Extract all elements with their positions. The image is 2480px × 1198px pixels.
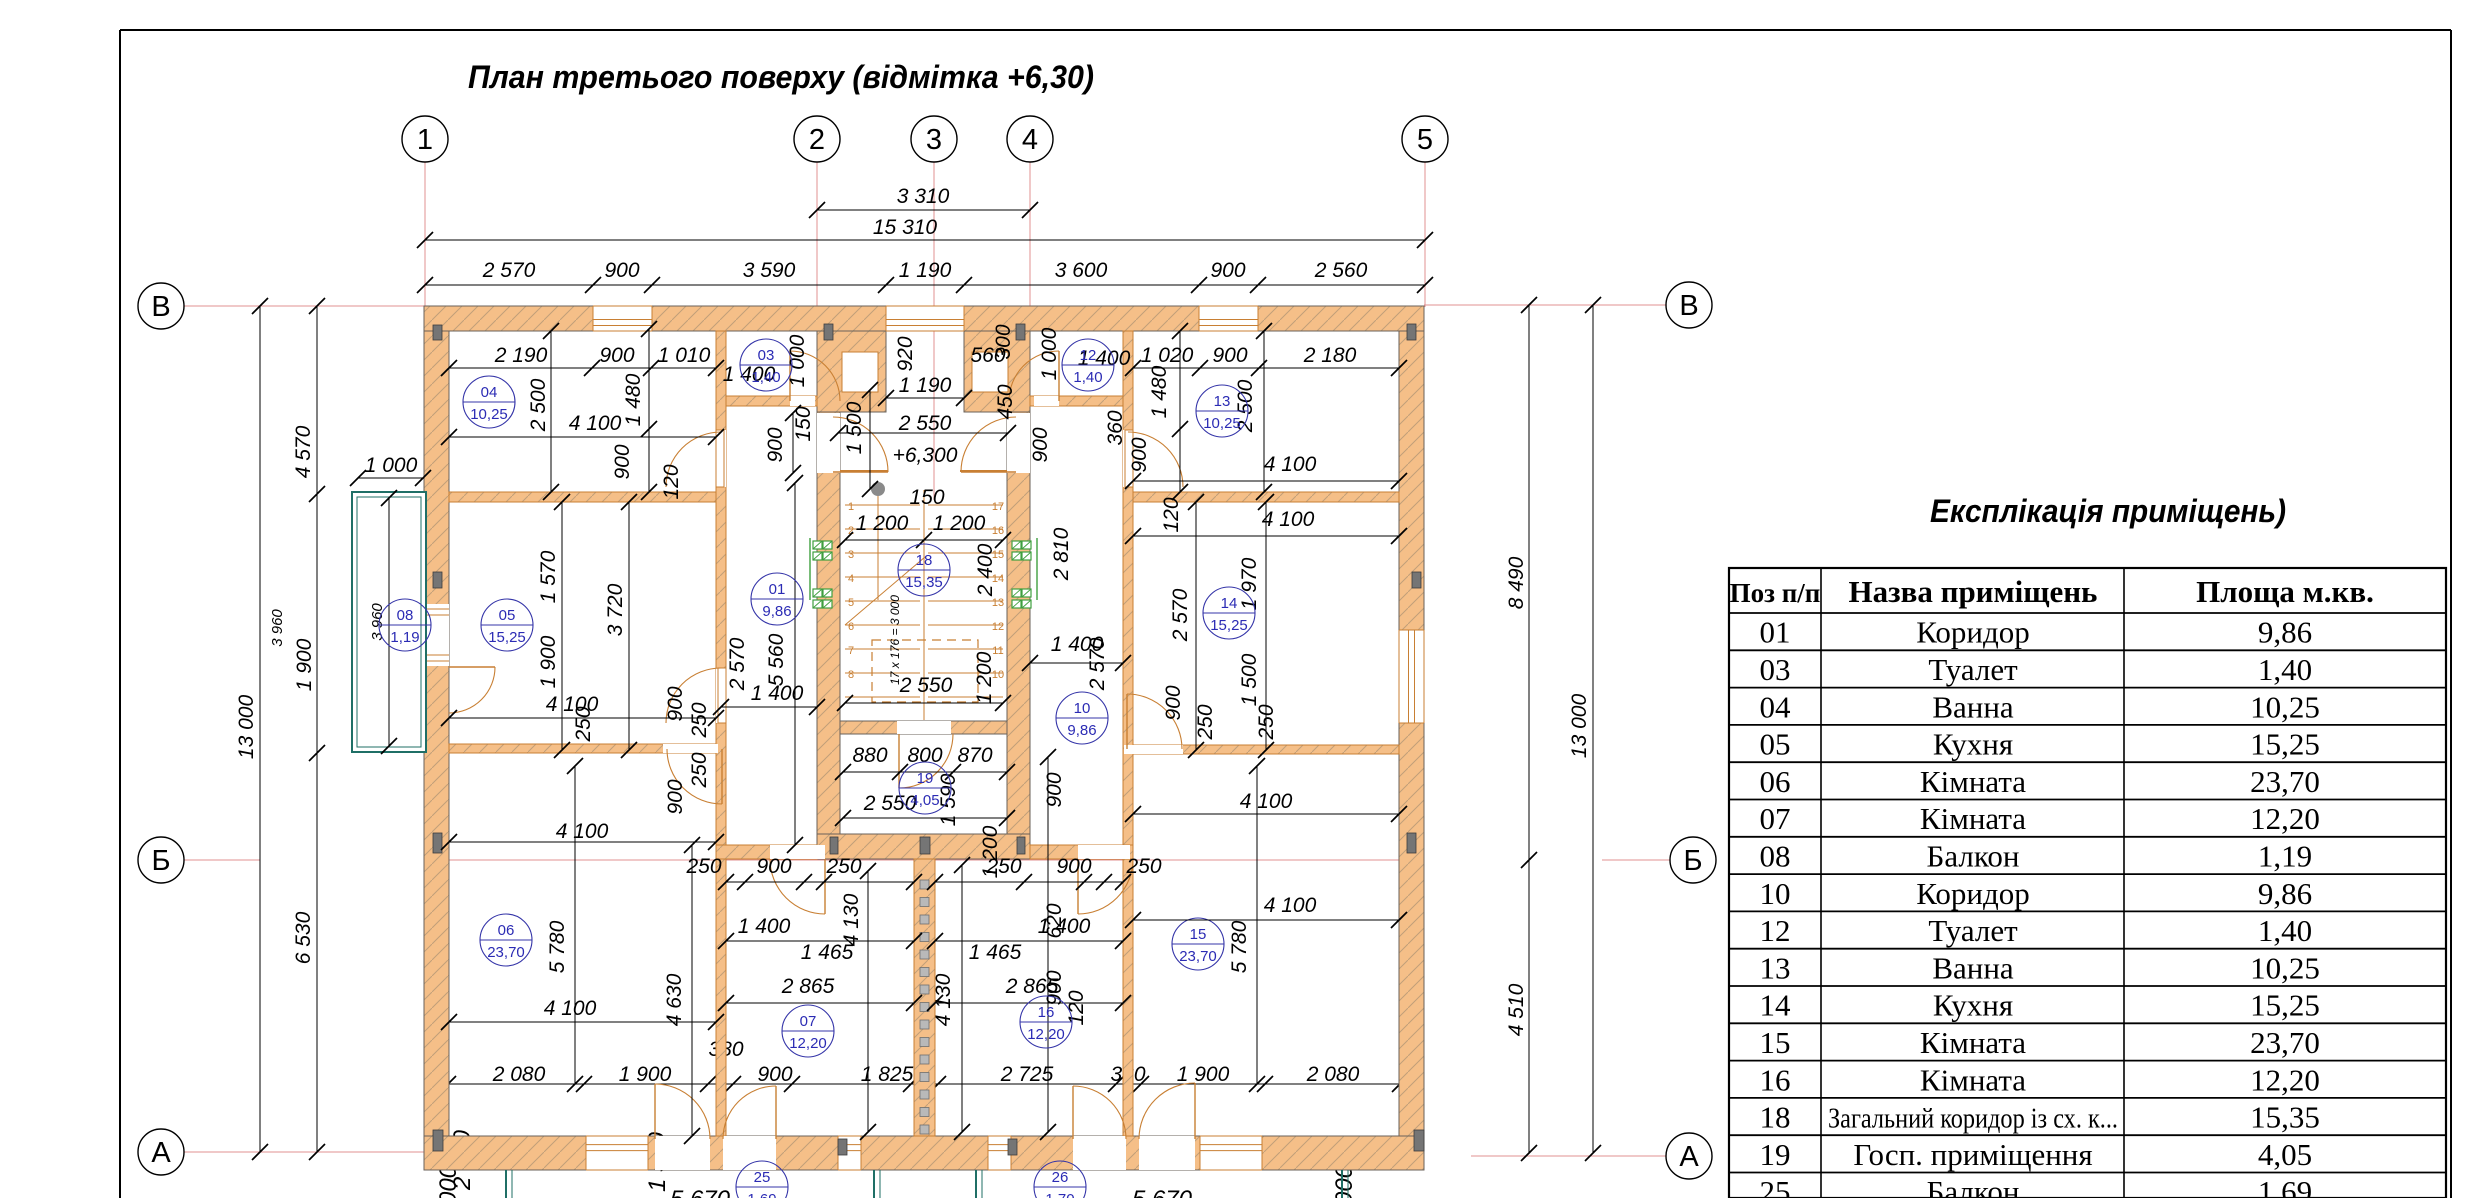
svg-text:3 590: 3 590 (743, 259, 796, 282)
svg-text:5 780: 5 780 (546, 920, 569, 973)
svg-text:1 010: 1 010 (658, 344, 711, 367)
svg-text:1 000: 1 000 (1038, 327, 1061, 380)
svg-text:Кімната: Кімната (1920, 764, 2026, 799)
svg-text:10,25: 10,25 (1203, 415, 1241, 432)
svg-text:5 670: 5 670 (1132, 1186, 1193, 1198)
svg-text:9,86: 9,86 (2258, 876, 2312, 911)
svg-text:250: 250 (1255, 704, 1278, 740)
svg-text:01: 01 (769, 581, 786, 598)
svg-text:5 670: 5 670 (670, 1186, 731, 1198)
svg-text:23,70: 23,70 (2250, 1025, 2320, 1060)
svg-text:Коридор: Коридор (1916, 615, 2030, 650)
svg-text:1 900: 1 900 (619, 1063, 672, 1086)
svg-text:1 480: 1 480 (622, 373, 645, 426)
svg-text:4 100: 4 100 (1264, 453, 1317, 476)
svg-text:25: 25 (1760, 1174, 1791, 1198)
svg-text:23,70: 23,70 (1179, 948, 1217, 965)
svg-text:2 865: 2 865 (1005, 975, 1059, 998)
svg-text:03: 03 (1760, 652, 1791, 687)
svg-text:25: 25 (754, 1169, 771, 1186)
svg-text:14: 14 (1760, 988, 1792, 1023)
svg-text:Кухня: Кухня (1933, 988, 2013, 1023)
svg-text:900: 900 (1212, 344, 1247, 367)
svg-text:12: 12 (1760, 913, 1791, 948)
svg-text:1,69: 1,69 (747, 1191, 776, 1198)
svg-text:300: 300 (992, 324, 1015, 359)
svg-text:4 130: 4 130 (932, 973, 955, 1026)
svg-text:1 900: 1 900 (537, 635, 560, 688)
svg-text:Кімната: Кімната (1920, 801, 2026, 836)
svg-text:2 180: 2 180 (1303, 344, 1357, 367)
svg-text:2 400: 2 400 (974, 543, 997, 597)
svg-text:1 465: 1 465 (801, 941, 854, 964)
svg-text:01: 01 (1760, 615, 1791, 650)
svg-text:4 510: 4 510 (1505, 983, 1528, 1036)
svg-text:2 570: 2 570 (1086, 637, 1109, 691)
svg-text:8 490: 8 490 (1505, 556, 1528, 609)
svg-text:2 550: 2 550 (863, 792, 917, 815)
svg-text:1 400: 1 400 (1038, 915, 1091, 938)
svg-text:04: 04 (1760, 689, 1792, 724)
svg-text:250: 250 (688, 702, 711, 738)
svg-text:В: В (1679, 290, 1698, 322)
svg-text:17: 17 (992, 501, 1004, 513)
svg-text:1 020: 1 020 (1141, 344, 1194, 367)
svg-text:1,40: 1,40 (751, 369, 780, 386)
svg-text:10: 10 (1074, 700, 1091, 717)
svg-text:07: 07 (1760, 801, 1791, 836)
svg-text:26: 26 (1052, 1169, 1069, 1186)
svg-text:900: 900 (664, 686, 687, 721)
svg-text:05: 05 (499, 607, 516, 624)
svg-text:12: 12 (1080, 347, 1097, 364)
svg-text:4 100: 4 100 (1262, 508, 1315, 531)
svg-text:Експлікація приміщень): Експлікація приміщень) (1930, 493, 2286, 529)
svg-text:2 865: 2 865 (781, 975, 835, 998)
svg-text:900: 900 (1128, 437, 1151, 472)
svg-text:Балкон: Балкон (1927, 1174, 2020, 1198)
svg-text:Ванна: Ванна (1932, 689, 2014, 724)
svg-text:4: 4 (1022, 124, 1038, 156)
svg-text:Коридор: Коридор (1916, 876, 2030, 911)
svg-text:16: 16 (1760, 1062, 1791, 1097)
svg-text:5 780: 5 780 (1228, 920, 1251, 973)
svg-text:13: 13 (1760, 950, 1791, 985)
svg-text:13: 13 (1214, 393, 1231, 410)
svg-text:2 570: 2 570 (726, 637, 749, 691)
svg-text:Госп. приміщення: Госп. приміщення (1853, 1137, 2092, 1172)
svg-text:3 960: 3 960 (269, 609, 286, 647)
svg-text:900: 900 (664, 779, 687, 814)
svg-text:5: 5 (1417, 124, 1433, 156)
svg-text:12,20: 12,20 (1027, 1026, 1065, 1043)
svg-text:900: 900 (756, 855, 791, 878)
svg-text:900: 900 (611, 444, 634, 479)
svg-text:250: 250 (688, 752, 711, 788)
svg-text:Балкон: Балкон (1927, 838, 2020, 873)
svg-text:23,70: 23,70 (487, 944, 525, 961)
svg-text:Площа м.кв.: Площа м.кв. (2196, 574, 2374, 609)
svg-text:6 530: 6 530 (292, 911, 315, 964)
svg-text:15,25: 15,25 (1210, 617, 1248, 634)
svg-text:3 600: 3 600 (1055, 259, 1108, 282)
svg-text:3: 3 (926, 124, 942, 156)
svg-text:Кухня: Кухня (1933, 727, 2013, 762)
svg-text:15: 15 (1190, 926, 1207, 943)
svg-text:12,20: 12,20 (2250, 801, 2320, 836)
svg-text:10,25: 10,25 (470, 406, 508, 423)
svg-text:12: 12 (992, 621, 1004, 633)
svg-text:2 810: 2 810 (1050, 527, 1073, 581)
svg-text:07: 07 (800, 1013, 817, 1030)
svg-text:5: 5 (848, 597, 854, 609)
svg-text:250: 250 (685, 855, 721, 878)
svg-text:800: 800 (907, 744, 942, 767)
svg-text:05: 05 (1760, 727, 1791, 762)
svg-text:4 130: 4 130 (840, 893, 863, 946)
svg-text:150: 150 (909, 486, 944, 509)
svg-text:900: 900 (764, 427, 787, 462)
svg-text:900: 900 (604, 259, 639, 282)
svg-text:Поз п/п: Поз п/п (1730, 578, 1821, 608)
svg-text:13: 13 (992, 597, 1004, 609)
svg-text:1 200: 1 200 (933, 512, 986, 535)
svg-text:1 000: 1 000 (786, 334, 809, 387)
svg-text:3 960: 3 960 (369, 603, 386, 641)
svg-text:120: 120 (1160, 497, 1183, 532)
svg-text:08: 08 (1760, 838, 1791, 873)
svg-text:15 310: 15 310 (873, 216, 938, 239)
svg-text:3: 3 (848, 549, 854, 561)
svg-text:4 100: 4 100 (556, 820, 609, 843)
svg-text:14: 14 (1221, 595, 1238, 612)
svg-text:870: 870 (957, 744, 992, 767)
svg-text:13 000: 13 000 (1568, 694, 1591, 759)
svg-text:9,86: 9,86 (2258, 615, 2312, 650)
svg-text:03: 03 (758, 347, 775, 364)
svg-text:1 480: 1 480 (1148, 365, 1171, 418)
svg-text:4 100: 4 100 (544, 997, 597, 1020)
svg-text:А: А (151, 1137, 171, 1169)
svg-text:12,20: 12,20 (789, 1035, 827, 1052)
svg-text:06: 06 (498, 922, 515, 939)
svg-text:360: 360 (1104, 410, 1127, 445)
svg-text:5 560: 5 560 (765, 633, 788, 686)
svg-text:1,40: 1,40 (2258, 913, 2312, 948)
svg-text:4: 4 (848, 573, 854, 585)
svg-text:900: 900 (1056, 855, 1091, 878)
svg-text:Б: Б (1683, 845, 1702, 877)
svg-text:23,70: 23,70 (2250, 764, 2320, 799)
svg-text:Кімната: Кімната (1920, 1025, 2026, 1060)
svg-text:1,70: 1,70 (1045, 1191, 1074, 1198)
svg-text:1,69: 1,69 (2258, 1174, 2312, 1198)
svg-text:120: 120 (660, 464, 683, 499)
svg-text:10,25: 10,25 (2250, 950, 2320, 985)
svg-text:Загальний коридор із сх. к...: Загальний коридор із сх. к... (1828, 1103, 2118, 1135)
svg-text:1,40: 1,40 (1073, 369, 1102, 386)
svg-text:Туалет: Туалет (1928, 913, 2018, 948)
svg-text:1 500: 1 500 (1238, 653, 1261, 706)
svg-text:1 200: 1 200 (856, 512, 909, 535)
svg-text:450: 450 (994, 384, 1017, 419)
svg-text:880: 880 (852, 744, 887, 767)
svg-text:1,19: 1,19 (2258, 838, 2312, 873)
svg-text:4 630: 4 630 (663, 973, 686, 1026)
svg-text:1: 1 (848, 501, 854, 513)
svg-text:1 400: 1 400 (738, 915, 791, 938)
svg-text:900: 900 (1162, 685, 1185, 720)
svg-text:1 500: 1 500 (843, 401, 866, 454)
svg-text:4 100: 4 100 (569, 412, 622, 435)
svg-text:900: 900 (1210, 259, 1245, 282)
svg-text:2 570: 2 570 (1169, 588, 1192, 642)
svg-text:900: 900 (1043, 772, 1066, 807)
svg-text:2 190: 2 190 (494, 344, 548, 367)
svg-text:06: 06 (1760, 764, 1791, 799)
svg-text:13 000: 13 000 (235, 695, 258, 760)
svg-text:900: 900 (599, 344, 634, 367)
svg-text:2: 2 (809, 124, 825, 156)
svg-text:4 570: 4 570 (292, 425, 315, 478)
svg-text:12,20: 12,20 (2250, 1062, 2320, 1097)
svg-text:15,25: 15,25 (2250, 988, 2320, 1023)
svg-text:900: 900 (757, 1063, 792, 1086)
svg-text:6: 6 (848, 621, 854, 633)
svg-text:+6,300: +6,300 (893, 444, 958, 467)
svg-text:920: 920 (894, 336, 917, 371)
svg-text:19: 19 (917, 770, 934, 787)
svg-text:Б: Б (151, 845, 170, 877)
svg-text:18: 18 (916, 552, 933, 569)
svg-text:2 570: 2 570 (482, 259, 536, 282)
svg-text:4 100: 4 100 (1240, 790, 1293, 813)
svg-text:2 550: 2 550 (898, 412, 952, 435)
svg-text:1 825: 1 825 (861, 1063, 914, 1086)
svg-text:План третього поверху (відмітк: План третього поверху (відмітка +6,30) (468, 59, 1094, 95)
svg-text:2 080: 2 080 (1306, 1063, 1360, 1086)
svg-text:10,25: 10,25 (2250, 689, 2320, 724)
svg-text:1,40: 1,40 (2258, 652, 2312, 687)
svg-text:15,35: 15,35 (905, 574, 943, 591)
svg-text:10: 10 (1760, 876, 1791, 911)
svg-text:17 x 176 = 3 000: 17 x 176 = 3 000 (888, 595, 902, 685)
svg-text:2 500: 2 500 (527, 378, 550, 432)
svg-text:9,86: 9,86 (762, 603, 791, 620)
svg-text:19: 19 (1760, 1137, 1791, 1172)
svg-text:Ванна: Ванна (1932, 950, 2014, 985)
svg-text:250: 250 (1194, 704, 1217, 740)
svg-text:1 190: 1 190 (899, 259, 952, 282)
svg-text:1 900: 1 900 (293, 638, 316, 691)
svg-text:250: 250 (985, 855, 1021, 878)
svg-text:9,86: 9,86 (1067, 722, 1096, 739)
svg-text:1: 1 (417, 124, 433, 156)
svg-text:Кімната: Кімната (1920, 1062, 2026, 1097)
svg-text:1 970: 1 970 (1238, 557, 1261, 610)
svg-text:Туалет: Туалет (1928, 652, 2018, 687)
svg-text:1 400: 1 400 (751, 682, 804, 705)
svg-text:1 000: 1 000 (365, 454, 418, 477)
svg-text:1 190: 1 190 (899, 374, 952, 397)
svg-text:3 310: 3 310 (897, 185, 950, 208)
svg-text:16: 16 (992, 525, 1004, 537)
svg-text:4 100: 4 100 (1264, 894, 1317, 917)
svg-text:900: 900 (1029, 427, 1052, 462)
svg-text:4,05: 4,05 (2258, 1137, 2312, 1172)
svg-text:04: 04 (481, 384, 498, 401)
svg-text:4,05: 4,05 (910, 792, 939, 809)
svg-text:8: 8 (848, 669, 854, 681)
svg-text:2 725: 2 725 (1000, 1063, 1054, 1086)
svg-text:2 550: 2 550 (899, 674, 953, 697)
svg-text:2 080: 2 080 (492, 1063, 546, 1086)
svg-text:1 900: 1 900 (1177, 1063, 1230, 1086)
svg-text:2 560: 2 560 (1314, 259, 1368, 282)
svg-text:1,19: 1,19 (390, 629, 419, 646)
svg-text:В: В (151, 291, 170, 323)
svg-text:1 200: 1 200 (973, 651, 996, 704)
svg-text:250: 250 (572, 706, 595, 742)
svg-text:16: 16 (1038, 1004, 1055, 1021)
svg-text:08: 08 (397, 607, 414, 624)
svg-text:Назва приміщень: Назва приміщень (1849, 574, 2098, 609)
svg-text:А: А (1679, 1141, 1699, 1173)
svg-text:15,35: 15,35 (2250, 1100, 2320, 1135)
svg-text:15: 15 (1760, 1025, 1791, 1060)
svg-text:3 720: 3 720 (604, 583, 627, 636)
svg-text:18: 18 (1760, 1100, 1791, 1135)
svg-text:1 465: 1 465 (969, 941, 1022, 964)
svg-text:7: 7 (848, 645, 854, 657)
svg-text:1 570: 1 570 (537, 550, 560, 603)
svg-text:15,25: 15,25 (488, 629, 526, 646)
svg-text:15,25: 15,25 (2250, 727, 2320, 762)
